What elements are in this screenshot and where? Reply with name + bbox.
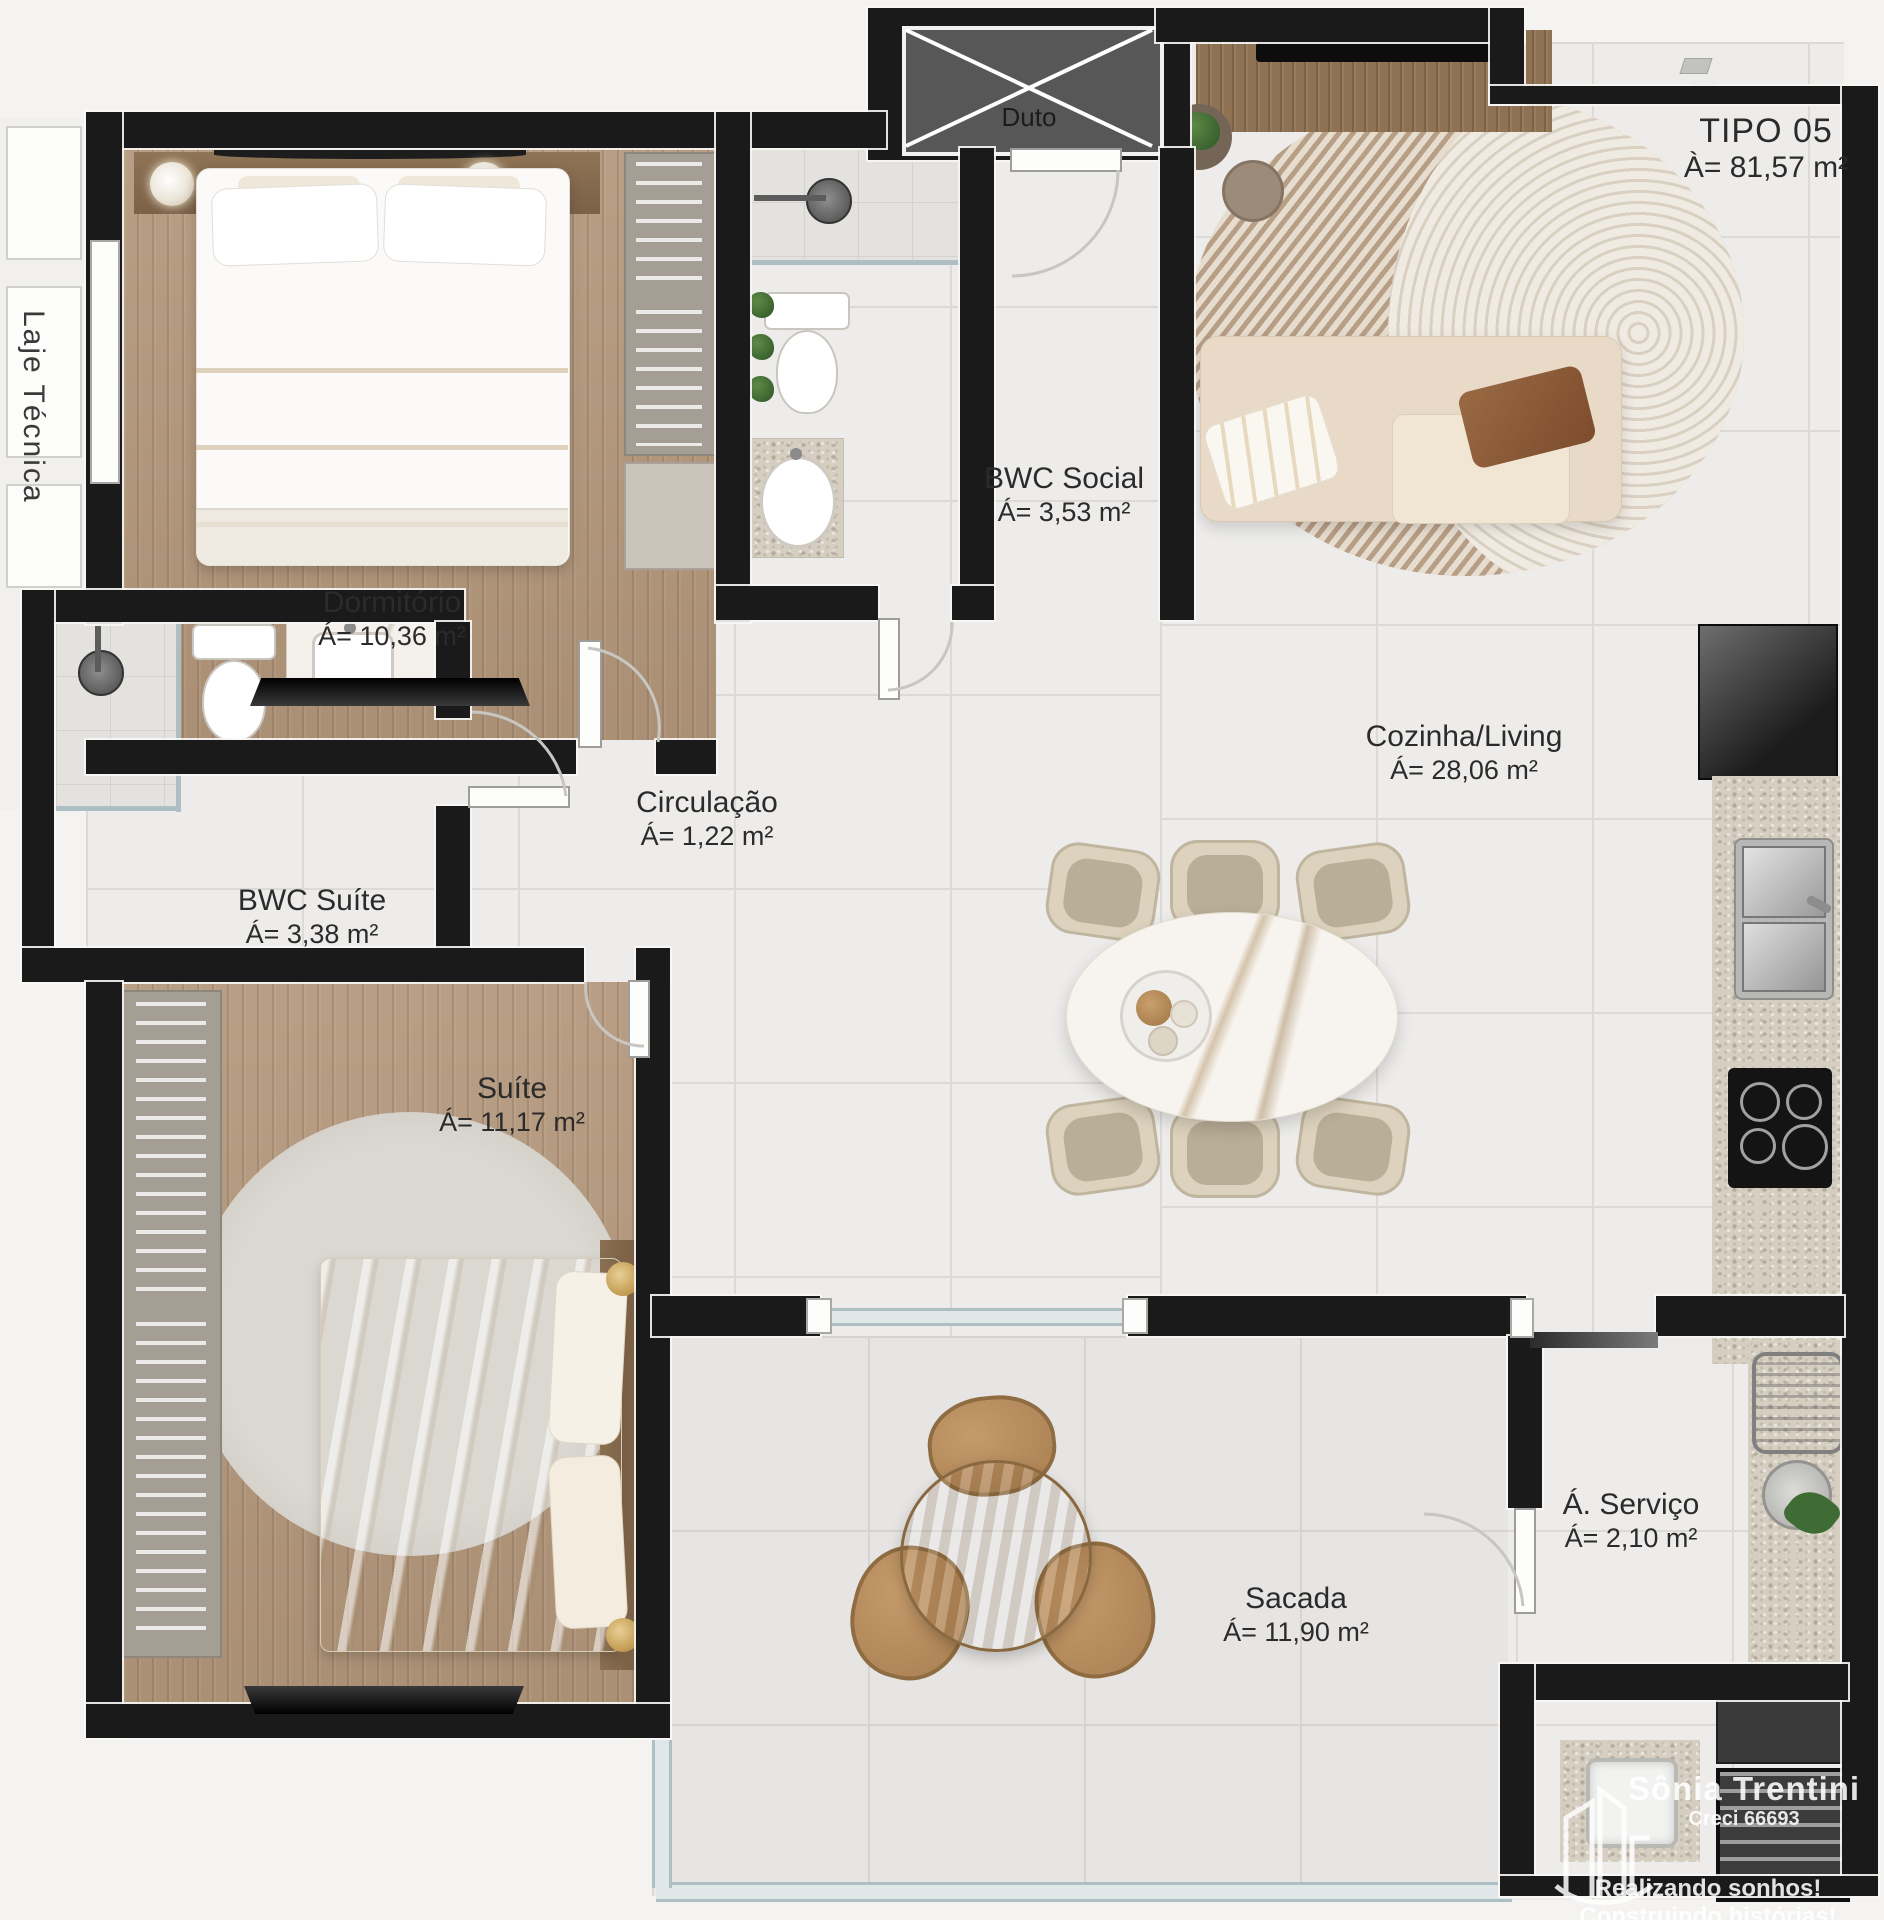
wall — [1490, 86, 1846, 104]
wall — [22, 948, 584, 982]
open-door-leaf — [1530, 1332, 1658, 1348]
room-area: Á= 2,10 m² — [1481, 1523, 1781, 1554]
room-label-circulacao: Circulação Á= 1,22 m² — [557, 786, 857, 852]
wood-bowl — [1148, 1026, 1178, 1056]
room-name: BWC Suíte — [162, 884, 462, 919]
suite-door — [628, 980, 650, 1058]
room-area: Á= 3,38 m² — [162, 919, 462, 950]
hanging-clothes — [636, 162, 702, 292]
room-area: Á= 11,17 m² — [362, 1107, 662, 1138]
dining-table — [1066, 912, 1398, 1122]
unit-type: TIPO 05 — [1616, 112, 1884, 151]
chair-seat — [1187, 855, 1263, 919]
duct-shaft — [902, 26, 1164, 156]
hanging-clothes — [636, 310, 702, 446]
laundry-sink — [1752, 1352, 1844, 1454]
balcony-railing — [656, 1882, 1512, 1902]
burner — [1740, 1128, 1776, 1164]
burner — [1740, 1082, 1780, 1122]
shower-head — [78, 650, 124, 696]
chair-seat — [1061, 856, 1145, 930]
bwc-suite-door — [468, 786, 570, 808]
wall — [1128, 1296, 1526, 1336]
burner — [1782, 1124, 1828, 1170]
wall-outer-right — [1842, 86, 1878, 1896]
wall — [960, 148, 994, 620]
watermark: Sônia Trentini Creci 66693 Realizando so… — [1548, 1762, 1884, 1920]
room-label-servico: Á. Serviço Á= 2,10 m² — [1481, 1488, 1781, 1554]
floor-plan: Laje Técnica Dormitório Á= 10,36 m² BWC … — [0, 0, 1884, 1920]
wall — [1508, 1336, 1542, 1508]
suite-tv — [244, 1686, 524, 1714]
wall — [716, 112, 750, 622]
wall — [1500, 1664, 1534, 1896]
room-label-bwc-suite: BWC Suíte Á= 3,38 m² — [162, 884, 462, 950]
hanging-clothes — [136, 1002, 206, 1302]
room-name: BWC Social — [914, 462, 1214, 497]
bed-pillow — [211, 183, 380, 267]
wall — [86, 740, 576, 774]
bed-pillow — [383, 183, 548, 267]
sink-basin — [1742, 922, 1826, 992]
chair-seat — [1311, 856, 1395, 930]
dark-cabinet — [1716, 1696, 1846, 1764]
sink-basin — [1742, 846, 1826, 918]
wall — [1160, 148, 1194, 620]
room-label-bwc-social: BWC Social Á= 3,53 m² — [914, 462, 1214, 528]
cooktop — [1728, 1068, 1832, 1188]
bedroom-dresser — [624, 462, 718, 570]
plant — [748, 376, 774, 402]
room-name: Circulação — [557, 786, 857, 821]
dimension-marker — [1679, 58, 1712, 74]
bwc-social-door — [878, 618, 900, 700]
slab-panel — [6, 126, 82, 260]
balcony-sliding-door — [820, 1308, 1128, 1326]
room-area: Á= 11,90 m² — [1121, 1617, 1471, 1648]
wall — [952, 586, 994, 620]
wall — [1656, 1296, 1844, 1336]
dining-chair — [1042, 1093, 1164, 1199]
wall — [1500, 1664, 1848, 1700]
duct-label: Duto — [902, 102, 1156, 133]
shower-glass — [176, 622, 181, 812]
bedside-lamp — [606, 1618, 640, 1652]
wall — [636, 948, 670, 1738]
bed-fold — [196, 508, 568, 566]
chair-seat — [1061, 1110, 1145, 1184]
door-frame — [1122, 1298, 1148, 1334]
wall — [22, 590, 54, 982]
entry-door — [1010, 148, 1122, 172]
balcony-railing — [652, 1738, 672, 1888]
hanging-clothes — [136, 1322, 206, 1642]
room-name: Á. Serviço — [1481, 1488, 1781, 1523]
vanity-sink — [760, 456, 836, 548]
fridge — [1698, 624, 1838, 780]
room-area: Á= 3,53 m² — [914, 497, 1214, 528]
chair-seat — [1187, 1121, 1263, 1185]
bed-pillow — [548, 1270, 629, 1446]
wall — [716, 586, 878, 620]
room-area: Á= 28,06 m² — [1289, 755, 1639, 786]
shower-glass — [750, 260, 960, 265]
toilet — [764, 292, 850, 330]
watermark-name: Sônia Trentini — [1604, 1770, 1884, 1808]
window — [90, 240, 120, 484]
shower-head — [806, 178, 852, 224]
wall — [1156, 8, 1524, 42]
room-label-sacada: Sacada Á= 11,90 m² — [1121, 1582, 1471, 1648]
wood-bowl — [1136, 990, 1172, 1026]
door-frame — [1510, 1298, 1534, 1338]
side-table — [1222, 160, 1284, 222]
burner — [1786, 1084, 1822, 1120]
bedroom-tv — [250, 678, 530, 706]
balcony-table — [900, 1460, 1092, 1652]
watermark-tagline: Construindo histórias! — [1558, 1902, 1858, 1920]
wall — [86, 112, 886, 148]
room-area: Á= 10,36 m² — [242, 621, 542, 652]
room-name: Sacada — [1121, 1582, 1471, 1617]
bedroom-wardrobe — [624, 152, 718, 456]
toilet-bowl — [776, 330, 838, 414]
bed-pillow — [548, 1454, 629, 1630]
bwc-social-shower-floor — [750, 148, 960, 264]
living-tv — [1256, 42, 1508, 62]
room-area: Á= 1,22 m² — [557, 821, 857, 852]
chair-seat — [1311, 1110, 1395, 1184]
room-name: Cozinha/Living — [1289, 720, 1639, 755]
plant — [748, 334, 774, 360]
room-name: Suíte — [362, 1072, 662, 1107]
wall — [656, 740, 716, 774]
watermark-tagline: Realizando sonhos! — [1558, 1874, 1858, 1904]
watermark-license: Creci 66693 — [1604, 1808, 1884, 1831]
bedroom-door — [578, 640, 602, 748]
wall-lamp — [150, 162, 194, 206]
faucet — [790, 448, 802, 460]
technical-slab-label: Laje Técnica — [16, 310, 50, 610]
door-frame — [806, 1298, 832, 1334]
wood-bowl — [1170, 1000, 1198, 1028]
suite-wardrobe — [122, 990, 222, 1658]
room-name: Dormitório — [242, 586, 542, 621]
headboard-decor — [214, 150, 526, 159]
unit-type-label: TIPO 05 À= 81,57 m² — [1616, 112, 1884, 186]
plant — [748, 292, 774, 318]
bwc-suite-shower-floor — [56, 622, 178, 810]
room-label-cozinha-living: Cozinha/Living Á= 28,06 m² — [1289, 720, 1639, 786]
bedside-lamp — [606, 1262, 640, 1296]
unit-area: À= 81,57 m² — [1616, 151, 1884, 186]
shower-glass — [56, 806, 181, 811]
slab-panel — [0, 596, 22, 810]
room-label-dormitorio: Dormitório Á= 10,36 m² — [242, 586, 542, 652]
wall — [652, 1296, 820, 1336]
room-label-suite: Suíte Á= 11,17 m² — [362, 1072, 662, 1138]
wall — [86, 982, 122, 1738]
